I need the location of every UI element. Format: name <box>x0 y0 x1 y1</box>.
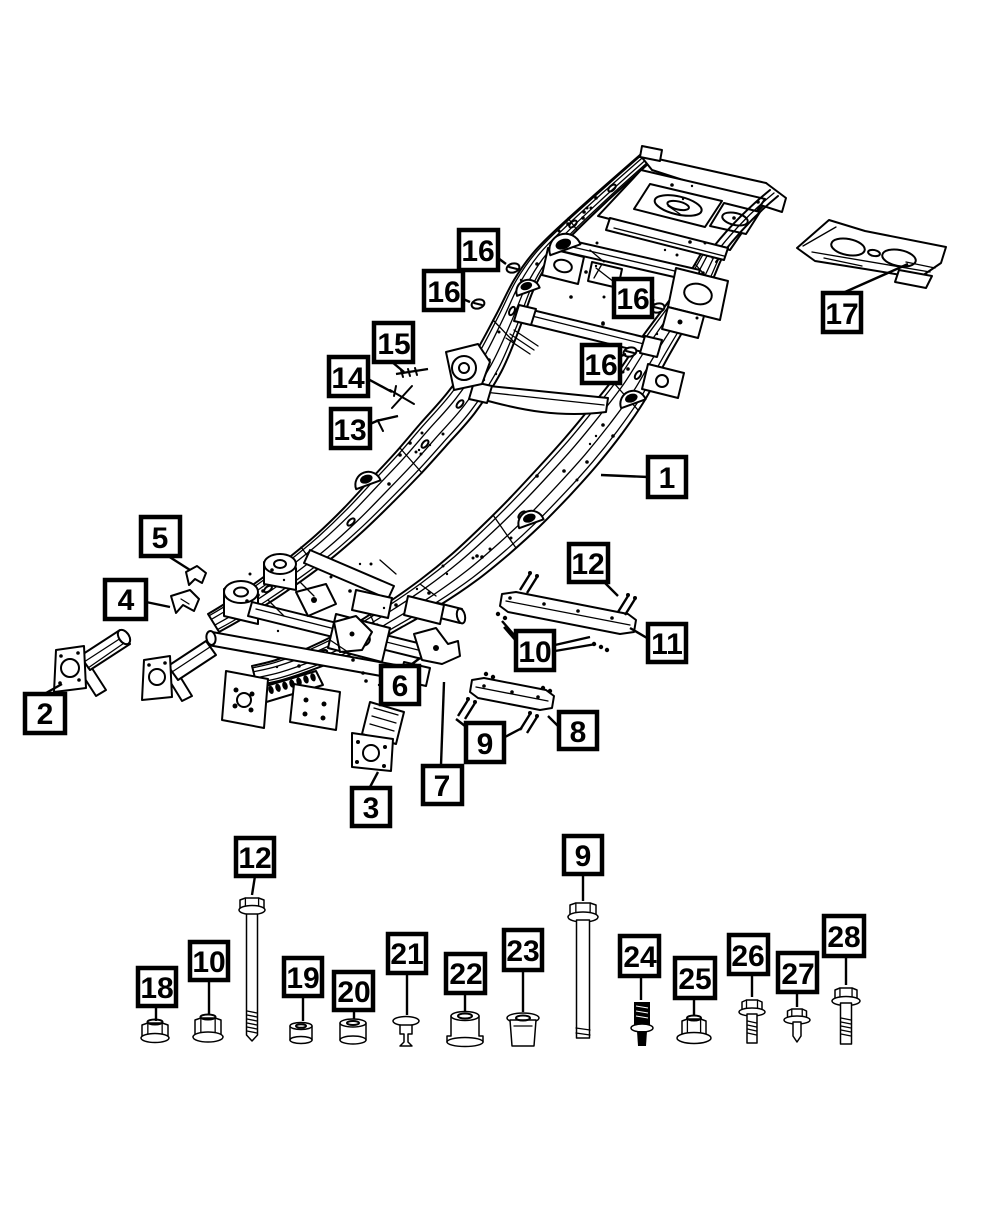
svg-text:8: 8 <box>570 716 587 749</box>
svg-text:22: 22 <box>449 958 482 991</box>
svg-text:18: 18 <box>140 972 173 1005</box>
svg-text:24: 24 <box>623 941 657 974</box>
svg-text:16: 16 <box>461 235 494 268</box>
svg-text:10: 10 <box>192 946 225 979</box>
svg-text:3: 3 <box>363 792 380 825</box>
svg-text:1: 1 <box>659 462 676 495</box>
svg-text:15: 15 <box>377 328 410 361</box>
svg-text:16: 16 <box>616 283 649 316</box>
svg-text:17: 17 <box>825 298 858 331</box>
svg-text:9: 9 <box>575 840 592 873</box>
svg-text:10: 10 <box>518 636 551 669</box>
svg-text:12: 12 <box>571 548 604 581</box>
svg-text:4: 4 <box>118 584 135 617</box>
svg-text:25: 25 <box>678 963 711 996</box>
svg-text:21: 21 <box>390 938 423 971</box>
svg-text:27: 27 <box>781 958 814 991</box>
svg-text:26: 26 <box>731 940 764 973</box>
svg-text:19: 19 <box>286 962 319 995</box>
svg-text:7: 7 <box>434 770 451 803</box>
svg-text:23: 23 <box>506 935 539 968</box>
svg-text:28: 28 <box>827 921 860 954</box>
svg-text:5: 5 <box>152 522 169 555</box>
svg-text:16: 16 <box>427 276 460 309</box>
svg-text:2: 2 <box>37 698 54 731</box>
svg-text:11: 11 <box>651 628 683 661</box>
svg-text:13: 13 <box>333 414 366 447</box>
svg-text:16: 16 <box>584 349 617 382</box>
svg-text:20: 20 <box>337 976 370 1009</box>
svg-text:6: 6 <box>392 670 409 703</box>
svg-text:9: 9 <box>477 728 494 761</box>
svg-text:14: 14 <box>331 362 365 395</box>
svg-text:12: 12 <box>238 842 271 875</box>
